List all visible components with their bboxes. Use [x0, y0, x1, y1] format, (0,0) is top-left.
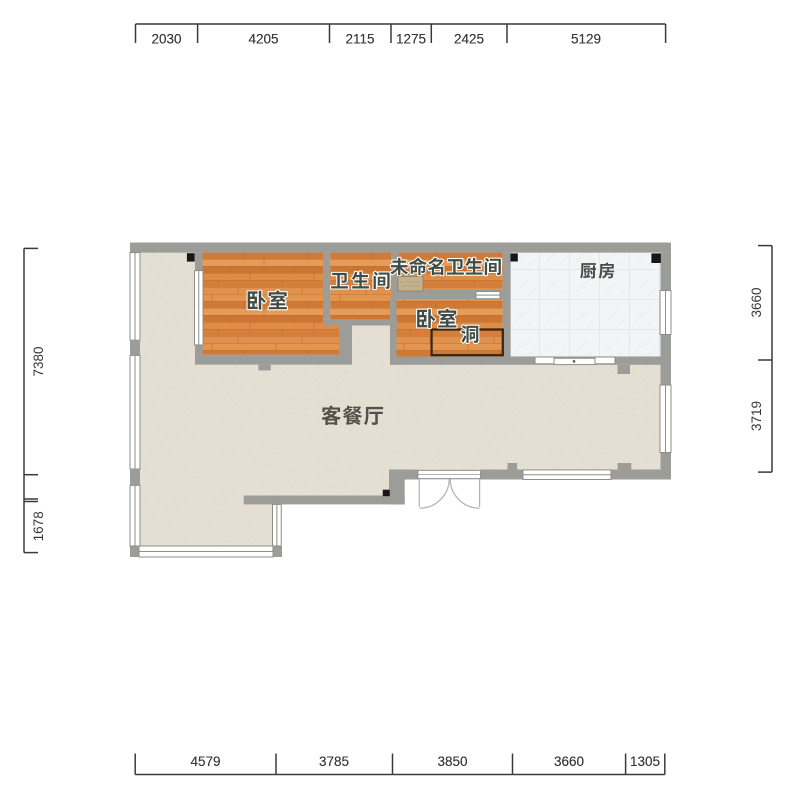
svg-text:3719: 3719	[749, 401, 764, 431]
svg-text:4579: 4579	[190, 754, 220, 769]
svg-text:1275: 1275	[396, 32, 426, 47]
svg-text:3785: 3785	[319, 754, 349, 769]
svg-text:2030: 2030	[151, 32, 181, 47]
svg-text:3660: 3660	[554, 754, 584, 769]
svg-text:7380: 7380	[31, 346, 46, 376]
svg-text:5129: 5129	[571, 32, 601, 47]
svg-text:3660: 3660	[749, 287, 764, 317]
svg-text:2425: 2425	[454, 32, 484, 47]
svg-text:3850: 3850	[437, 754, 467, 769]
svg-text:4205: 4205	[248, 32, 278, 47]
svg-text:2115: 2115	[345, 32, 374, 47]
svg-text:1678: 1678	[31, 511, 46, 541]
svg-text:1305: 1305	[630, 754, 660, 769]
